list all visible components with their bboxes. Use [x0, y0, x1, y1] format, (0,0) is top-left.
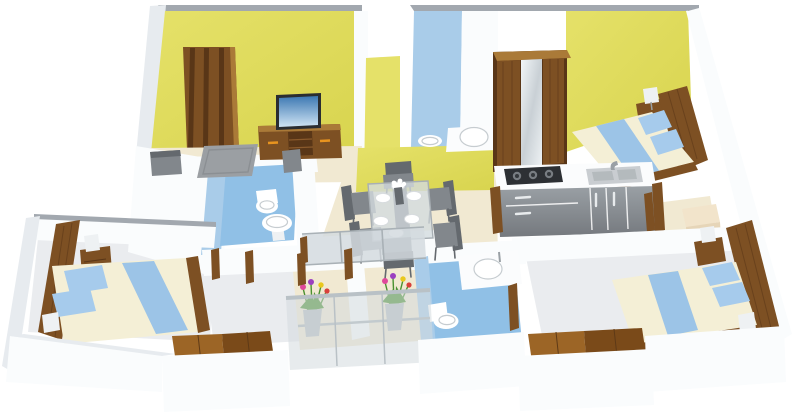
bathroom-top-blue-wall	[411, 11, 462, 148]
wall-cap	[410, 5, 692, 11]
table-lamp	[700, 226, 716, 243]
tv-screen	[279, 96, 318, 127]
table-lamp	[84, 234, 100, 252]
wall-cap	[158, 5, 362, 11]
table-lamp	[643, 87, 659, 104]
sink-bowl	[592, 171, 614, 181]
foyer-landing	[518, 328, 654, 411]
foyer-front-wall	[518, 349, 654, 411]
foyer-front-wall	[162, 350, 290, 412]
armchair	[282, 149, 302, 173]
floor-plan-render	[0, 0, 800, 420]
faucet	[499, 252, 500, 262]
lamp-stem	[651, 102, 652, 110]
wardrobe-mirror	[521, 59, 542, 167]
drawer-handle	[320, 141, 330, 142]
foyer-landing	[162, 331, 290, 412]
bath3-south-wall	[418, 332, 526, 394]
sink-bowl	[617, 169, 637, 180]
floor-plan-canvas	[0, 0, 800, 420]
mirrored-wardrobe	[493, 50, 571, 172]
plate	[405, 214, 420, 223]
balcony	[286, 227, 434, 370]
plate	[376, 193, 391, 202]
tv	[276, 93, 321, 130]
kitchen-cabinets	[497, 186, 659, 237]
plate	[374, 216, 389, 225]
floor-lamp	[42, 312, 60, 333]
bedroom3-south-wall	[645, 326, 786, 392]
wardrobe-left-door	[497, 60, 520, 170]
glass-railing	[286, 290, 434, 370]
wardrobe-right-door	[543, 58, 564, 165]
drawer-handle	[268, 143, 278, 144]
entry-door	[183, 47, 239, 150]
kitchen	[490, 161, 665, 237]
plate	[407, 191, 422, 200]
